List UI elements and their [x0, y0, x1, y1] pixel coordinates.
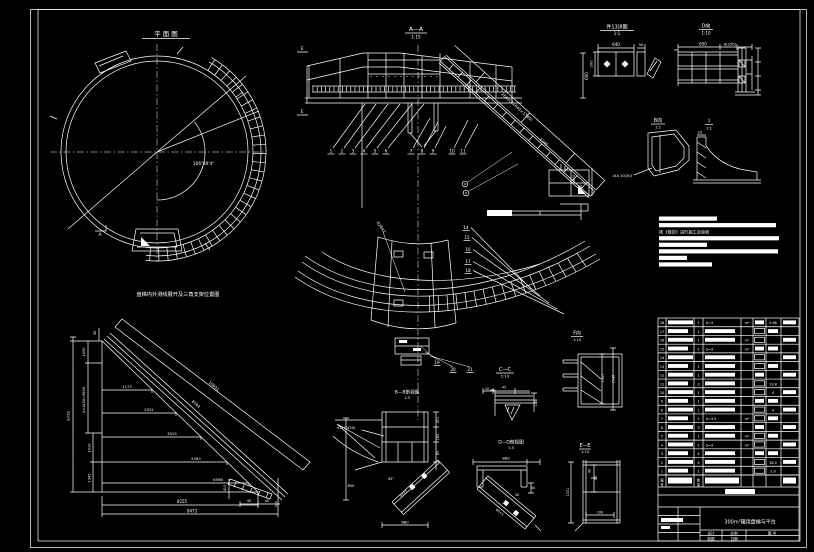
bb-880: 880 [401, 520, 409, 525]
cage-grid [368, 53, 440, 98]
dev-triangle [102, 341, 258, 492]
part-spec-bar [705, 338, 735, 342]
cc-mini-bar [487, 210, 512, 216]
angle-dim: 106°49'4" [193, 161, 214, 166]
part-spec: δ=3.5 [706, 417, 716, 421]
view-d: D向 1:10 650 6(150) [674, 23, 761, 96]
cc-callout: 16 [465, 247, 471, 252]
bb-left [333, 418, 384, 500]
part-no: 7 [661, 417, 663, 421]
landings [95, 51, 182, 251]
rivet-dot [376, 76, 377, 77]
part-spec-bar [705, 469, 735, 473]
dd-channel-u [477, 466, 527, 487]
part-bar [768, 329, 778, 333]
view-f: F向 1:10 1001 1140 [563, 330, 622, 411]
part-no: 18 [660, 321, 664, 325]
part-box [755, 442, 765, 447]
stair-tread [530, 275, 536, 289]
rivet-dot [418, 76, 419, 77]
part-box [755, 459, 765, 464]
stair-tread [198, 239, 204, 251]
rail-post [566, 153, 575, 163]
part-no: 14 [660, 356, 664, 360]
notes-redacted-bar [659, 217, 717, 221]
header-bar [783, 478, 796, 484]
stair-stringer [439, 63, 589, 198]
marker-e-top: E [301, 46, 304, 52]
stair-tread [244, 193, 256, 199]
cc-callout: 18 [465, 268, 471, 273]
notes-redacted-bar [659, 249, 778, 253]
part-name-bar [668, 469, 688, 473]
part-unit: m² [745, 321, 750, 325]
view-d-rails [674, 50, 738, 86]
part-bar [755, 373, 764, 377]
stair-foot [549, 164, 592, 196]
dd-scale: 1:5 [508, 446, 514, 450]
redacted-bar [661, 518, 683, 522]
stair-stringer [445, 56, 595, 191]
part-qty: 1 [697, 435, 699, 439]
part-bar [768, 399, 778, 403]
elev-callout: 11 [460, 149, 466, 154]
part-no: 6 [661, 426, 663, 430]
stair-tread [502, 112, 506, 117]
stair-tread [465, 293, 467, 309]
part-box [755, 337, 765, 342]
mini-45: 45 [502, 386, 506, 390]
part-spec-bar [705, 434, 735, 438]
part-box [755, 407, 765, 412]
section-marker-a: A [98, 232, 102, 238]
label-draft: 制图 [707, 536, 715, 541]
part-unit: m² [745, 435, 750, 439]
stair-tread [483, 289, 486, 304]
part-spec-bar [705, 390, 735, 394]
stair-tread [440, 56, 444, 61]
part-qty: 1 [697, 443, 699, 447]
plan-title: 平 面 图 [154, 30, 178, 38]
bolt-square [513, 510, 519, 516]
rail-post [596, 180, 605, 190]
view-d-channel [735, 48, 755, 95]
part-note-bar [783, 320, 796, 324]
bb-ch-label: 60×5 [399, 489, 408, 498]
stair-tread [221, 71, 230, 81]
part-note-bar [783, 373, 796, 377]
part-bar [755, 320, 764, 324]
callout-leader [413, 118, 430, 148]
bolt-diamond [603, 60, 610, 67]
part-qty: 1 [697, 339, 699, 343]
stair-tread [250, 178, 263, 181]
stair-tread [484, 96, 488, 101]
stair-tread [449, 64, 453, 69]
part-weight: 4 [772, 391, 774, 395]
dim-600: 600 [584, 72, 589, 80]
part-box [755, 355, 765, 360]
part-spec-bar [705, 373, 735, 377]
bb-411: 411 [436, 417, 440, 423]
part-no: 13 [660, 365, 664, 369]
mini-detail: 10 45 130 [483, 386, 538, 421]
part-spec-bar [705, 364, 735, 368]
stair-tread [251, 170, 264, 172]
cc-platform [371, 237, 456, 329]
part-qty: 1 [697, 330, 699, 334]
ee-80: 80 [594, 476, 598, 480]
dev-v4: 1345 [88, 474, 92, 483]
part-weight: 0.66 [769, 321, 777, 325]
part-no: 12 [660, 374, 664, 378]
part-unit: m² [745, 347, 750, 351]
stair-tread [549, 267, 556, 281]
view-b-body [634, 130, 689, 176]
header-bar [668, 478, 692, 484]
bb-title: B—B剖视图 [395, 389, 420, 396]
part-spec-bar [705, 399, 735, 403]
stair-tread [537, 144, 541, 149]
cad-drawing-page: 平 面 图 106°49'4" A A—A 1:15 600 2642(2×64… [0, 0, 814, 552]
cc-callout: 15 [464, 235, 470, 240]
stair-tread [250, 126, 263, 129]
elev-callout: 5 [374, 149, 377, 154]
part-weight: 38.4 [769, 461, 777, 465]
bb-scale: 1:5 [404, 396, 410, 400]
part-note-bar [783, 338, 796, 342]
dd-band [477, 476, 541, 531]
redacted-bar [725, 489, 755, 494]
part-qty: 4 [697, 461, 700, 465]
dd-30: 30 [515, 493, 519, 497]
elevation-view: A—A 1:15 600 2642(2×645×1540) 1245 E E 4… [297, 26, 592, 420]
label-scale: 比例 [730, 531, 738, 536]
stair-stringer [440, 61, 590, 196]
part-spec: δ=3 [706, 347, 713, 351]
stair-tread [150, 248, 151, 261]
part-unit: m² [745, 443, 750, 447]
title-block-outline [658, 475, 799, 541]
bb-160: 160 [436, 434, 440, 440]
stair-tread [227, 77, 236, 86]
detail-i-dim10: 10 [698, 131, 702, 135]
part-box [755, 468, 765, 473]
part-bar [768, 416, 778, 420]
dev-bottom1: 8255 [177, 499, 188, 504]
cc-callout: 20 [450, 367, 456, 372]
detail13-title: 件13详图 [606, 24, 627, 31]
ee-1001: 1001 [566, 488, 570, 497]
part-no: 16 [660, 339, 664, 343]
dev-40a: 40 [247, 499, 251, 503]
part-no: 8 [661, 408, 663, 412]
bb-45: 45° [388, 477, 395, 481]
part-no: 11 [660, 382, 664, 386]
stair-tread [253, 144, 266, 145]
stair-tread [253, 162, 266, 163]
dev-stringers [104, 319, 310, 500]
part-no: 10 [660, 391, 664, 395]
dim-650: 650 [699, 42, 707, 47]
elev-callout: 7 [410, 149, 413, 154]
part-name-bar [668, 408, 693, 412]
view-d-dimline [678, 44, 752, 50]
section-ee: E—E 1:10 1001 80 40 100 [566, 443, 620, 531]
balloon-leaders [468, 152, 518, 191]
part-name-bar [668, 443, 693, 447]
view-d-rdim [755, 48, 761, 95]
dev-bottom2: 9473 [187, 509, 198, 514]
part-name-bar [668, 364, 688, 368]
stair-tread [467, 80, 471, 85]
marker-e-bottom: E [301, 109, 304, 115]
rivet-dot [388, 76, 389, 77]
rivet-dot [394, 76, 395, 77]
notes-text-line: 按《规范》进行施工及验收 [659, 228, 710, 235]
rivet-dot [382, 76, 383, 77]
cad-canvas: 平 面 图 106°49'4" A A—A 1:15 600 2642(2×64… [0, 0, 814, 552]
development-title: 盘梯内外测线展开及三角支架位置图 [136, 290, 219, 298]
dim-640: 640 [612, 42, 620, 47]
plan-view: 平 面 图 106°49'4" A [50, 30, 266, 262]
notes-redacted-bar [659, 243, 707, 247]
part-qty: 3 [697, 382, 699, 386]
part-bar [768, 451, 778, 455]
dev-v2: 4×1450=5800 [82, 387, 86, 413]
callout-leader [471, 228, 531, 290]
stair-dim: 2642(2×645×1540) [500, 92, 534, 123]
stair-tread [456, 294, 458, 310]
frame-outer [31, 10, 807, 548]
part-box [755, 416, 765, 421]
rivet-dot [400, 76, 401, 77]
section-dd: D—D剖视图 1:5 880 30 50 60×5 [473, 439, 541, 532]
title-block-grid [658, 487, 799, 541]
elev-callout: 8 [421, 149, 424, 154]
part-note-bar [783, 355, 796, 359]
callout-leader [454, 120, 468, 148]
development-diagram: 盘梯内外测线展开及三角支架位置图 1173 2531 3915 5283 659… [66, 290, 310, 517]
section-cc: R2642 C—C 1:10 [295, 204, 600, 379]
dev-top: 50 [93, 331, 97, 335]
part-no: 5 [661, 435, 663, 439]
stair-tread [511, 120, 515, 125]
part-spec-bar [705, 329, 735, 333]
part-name-bar [668, 399, 688, 403]
section-bb: B—B剖视图 1:5 880 850 45° 411 160 80 4-M10(… [333, 389, 450, 529]
landing-hatch [141, 237, 150, 246]
part-name-bar [668, 451, 688, 455]
part-weight: 13.8 [769, 382, 777, 386]
part-spec: δ=3 [706, 443, 713, 447]
detail-i-title: I [708, 119, 710, 125]
view-d-scale: 1:10 [702, 31, 711, 36]
bb-850: 850 [348, 484, 356, 488]
part-spec-bar [705, 425, 735, 429]
stair-tread [502, 284, 506, 299]
balloon-dot [465, 192, 467, 194]
part-no: 3 [661, 452, 663, 456]
bb-channel [392, 460, 450, 515]
stair-tread [240, 200, 251, 207]
dev-step-dim: 5283 [191, 456, 201, 461]
view-f-1001: 1001 [601, 374, 605, 383]
dev-hyp-outer: 10951 [208, 380, 221, 392]
ee-scale: 1:10 [581, 450, 590, 454]
part-bar [755, 399, 764, 403]
stair-tread [167, 247, 168, 260]
detail-i-scale: 1:1 [706, 126, 713, 131]
part-spec-bar [705, 381, 735, 385]
part-note-bar [783, 443, 796, 447]
mini-10: 10 [485, 387, 489, 391]
part-note-bar [783, 460, 796, 464]
callout-leader [388, 104, 424, 148]
part-bar [768, 347, 778, 351]
part-name-bar [668, 338, 693, 342]
stair-tread [474, 291, 477, 306]
header-qty: 量 [697, 482, 701, 487]
part-note-bar [783, 408, 796, 412]
detail-13: 件13详图 1:1 640 50 200 [589, 24, 662, 79]
dev-total: 9775 [66, 411, 71, 421]
dev-40b: 40 [265, 499, 269, 503]
stair-tread [183, 244, 187, 257]
part-box [755, 433, 765, 438]
callout-leader [424, 122, 438, 148]
rivet-dot [412, 76, 413, 77]
part-qty: 1 [697, 417, 699, 421]
part-qty: 1 [697, 408, 699, 412]
part-name-bar [668, 373, 693, 377]
stair-tread [558, 263, 566, 277]
frame [31, 10, 807, 548]
part-name-bar [668, 381, 688, 385]
cc-scale: 1:10 [501, 374, 510, 379]
redacted-bar [661, 526, 670, 529]
rivet-dot [436, 76, 437, 77]
elevation-scale: 1:15 [411, 35, 421, 40]
dd-880: 880 [502, 456, 510, 461]
drawing-title: 300m³罐用盘梯与平台 [724, 519, 775, 526]
stair-tread [447, 295, 448, 311]
part-qty: 1 [697, 391, 699, 395]
header-no: 编 [660, 478, 663, 483]
notes-redacted-bar [659, 262, 712, 266]
bb-bolt-label: 4-M10(20) [337, 426, 356, 430]
cc-callout: 17 [465, 259, 471, 264]
view-b-scale: 1:1 [655, 125, 662, 130]
dev-step-dim: 6598 [213, 477, 223, 482]
rivet-dot [406, 76, 407, 77]
stair-tread [493, 104, 497, 109]
bolt-square [503, 500, 509, 506]
part-name-bar [668, 355, 693, 359]
part-qty: 3 [697, 426, 699, 430]
stair-tread [555, 160, 559, 165]
ee-40: 40 [588, 469, 592, 473]
elev-callout: 9 [432, 149, 435, 154]
dev-vdims [70, 328, 102, 492]
part-qty: 1 [697, 347, 699, 351]
stair-tread [529, 136, 533, 141]
stair-tread [438, 296, 439, 312]
part-note-bar [783, 425, 796, 429]
bb-grating [382, 412, 428, 462]
view-f-1140: 1140 [612, 375, 616, 384]
part-qty: 4 [697, 452, 700, 456]
part-spec-bar [705, 355, 735, 359]
part-name-bar [668, 390, 693, 394]
detail-i-body [693, 135, 761, 183]
cc-landing-hatch [399, 340, 407, 343]
stair-tread [247, 185, 259, 190]
part-box [755, 363, 765, 368]
part-bar [768, 364, 778, 368]
part-no: 17 [660, 330, 664, 334]
stair-tread [476, 88, 480, 93]
part-unit: m² [745, 417, 750, 421]
part-no: 2 [661, 461, 663, 465]
stair-tread [191, 242, 196, 254]
cc-title: C—C [499, 367, 511, 373]
view-b-title: B向 [654, 117, 662, 124]
dim-200: 200 [589, 60, 594, 68]
elev-callout: 2 [341, 149, 344, 154]
section-e-flags [297, 52, 308, 115]
notes-redacted-bar [659, 236, 779, 240]
label-date: 日期 [730, 536, 738, 541]
part-bar [755, 451, 764, 455]
dev-steps [102, 390, 249, 486]
part-name-bar [668, 434, 688, 438]
dev-step-dim: 1173 [122, 384, 132, 389]
notes-redacted-bar [659, 256, 687, 260]
part-spec-bar [705, 451, 735, 455]
part-bar [755, 425, 764, 429]
part-no: 4 [661, 443, 663, 447]
rivet-dot [370, 76, 371, 77]
dev-step-dim: 2531 [144, 407, 154, 412]
bb-80: 80 [436, 451, 440, 455]
elev-callout: 4 [363, 149, 366, 154]
label-design: 设计 [707, 531, 715, 536]
part-name-bar [668, 416, 688, 420]
stair-tread [492, 287, 496, 302]
ee-title: E—E [580, 443, 591, 449]
cc-radius: R2642 [375, 220, 387, 234]
part-weight: 4 [772, 408, 774, 412]
cc-callout: 21 [467, 367, 473, 372]
header-no: 号 [660, 482, 663, 487]
part-no: 1 [661, 469, 663, 473]
dim-50: 50 [639, 42, 644, 47]
part-note-bar [783, 390, 796, 394]
label-drawing-no: 图 号 [768, 531, 777, 536]
dev-410: 410 [223, 485, 227, 491]
dd-ch-label: 60×5 [495, 508, 505, 517]
parts-list [658, 318, 799, 541]
bolt-diamond [621, 60, 628, 67]
part-qty: 1 [697, 365, 699, 369]
dd-50: 50 [531, 486, 535, 490]
elev-callout: 3 [352, 149, 355, 154]
stair-tread [520, 128, 524, 133]
part-no: 9 [661, 400, 663, 404]
view-d-title: D向 [702, 23, 711, 30]
part-bar [755, 347, 764, 351]
